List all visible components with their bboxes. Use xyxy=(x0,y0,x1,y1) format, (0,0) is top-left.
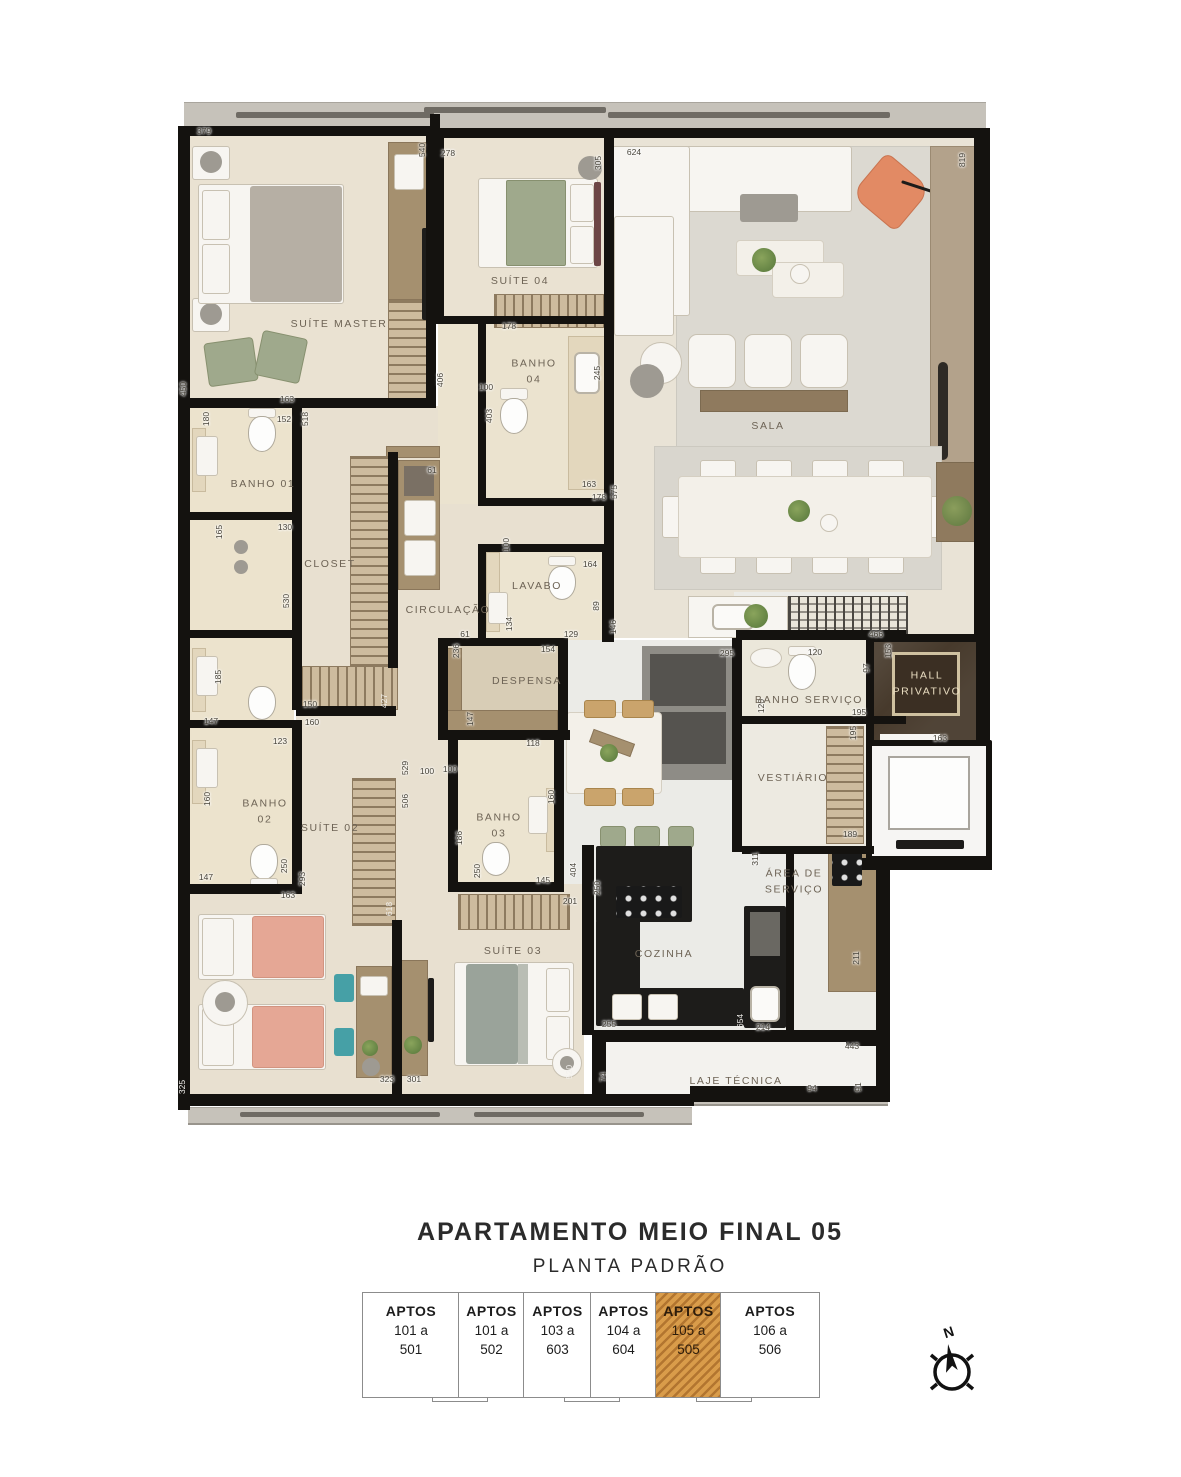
room-floor xyxy=(396,640,444,732)
title-block: APARTAMENTO MEIO FINAL 05 PLANTA PADRÃO xyxy=(180,1218,1080,1278)
furniture-w xyxy=(750,648,782,668)
dimension-label: 160 xyxy=(202,792,212,806)
room-label: BANHO 03 xyxy=(476,810,521,843)
keyplan-unit: APTOS101 a502 xyxy=(458,1292,525,1398)
dimension-label: 529 xyxy=(400,761,410,775)
furniture-gray2 xyxy=(518,964,528,1064)
dimension-label: 214 xyxy=(756,1022,770,1032)
dimension-label: 245 xyxy=(592,366,602,380)
furniture-wc xyxy=(500,398,528,434)
dimension-label: 147 xyxy=(465,712,475,726)
dimension-label: 520 xyxy=(564,1065,574,1079)
page-subtitle: PLANTA PADRÃO xyxy=(180,1256,1080,1278)
dimension-label: 575 xyxy=(609,485,619,499)
furniture-green2 xyxy=(466,964,518,1064)
dimension-label: 163 xyxy=(582,479,596,489)
keyplan-core-tab xyxy=(708,1338,740,1400)
furniture-w xyxy=(360,976,388,996)
furniture-teal xyxy=(334,1028,354,1056)
dimension-label: 160 xyxy=(305,717,319,727)
floor-plan-page: 3795402783056248194501631521805184061004… xyxy=(0,0,1181,1477)
dimension-label: 154 xyxy=(541,644,555,654)
furniture-cook xyxy=(616,886,682,918)
dimension-label: 152 xyxy=(277,414,291,424)
dimension-label: 323 xyxy=(380,1074,394,1084)
furniture-w xyxy=(820,514,838,532)
dimension-label: 819 xyxy=(957,153,967,167)
dimension-label: 325 xyxy=(177,1080,187,1094)
furniture-gray2 xyxy=(362,1058,380,1076)
furniture-gray2 xyxy=(630,364,664,398)
dimension-label: 145 xyxy=(536,875,550,885)
dimension-label: 163 xyxy=(280,394,294,404)
dimension-label: 147 xyxy=(199,872,213,882)
furniture-gray2 xyxy=(234,560,248,574)
keyplan-unit-label: 106 a xyxy=(753,1323,787,1338)
keyplan-unit-highlighted: APTOS105 a505 xyxy=(655,1292,722,1398)
keyplan-unit: APTOS106 a506 xyxy=(720,1292,820,1398)
room-label: SUÍTE MASTER xyxy=(291,316,388,332)
keyplan-unit-label: 506 xyxy=(759,1342,782,1357)
furniture-w xyxy=(648,994,678,1020)
furniture-gray2 xyxy=(740,194,798,222)
room-label: LAJE TÉCNICA xyxy=(689,1073,782,1089)
furniture-green xyxy=(203,337,259,388)
furniture-wc xyxy=(250,844,278,880)
wall xyxy=(974,128,990,640)
wall xyxy=(184,720,296,728)
furniture-teal xyxy=(334,974,354,1002)
furniture-gray2 xyxy=(215,992,235,1012)
dimension-label: 618 xyxy=(384,902,394,916)
wall xyxy=(292,720,302,894)
dimension-label: 178 xyxy=(502,321,516,331)
dimension-label: 654 xyxy=(735,1014,745,1028)
dimension-label: 163 xyxy=(281,890,295,900)
dimension-label: 506 xyxy=(400,794,410,808)
dimension-label: 427 xyxy=(379,694,389,708)
dimension-label: 120 xyxy=(808,647,822,657)
keyplan-unit-label: 502 xyxy=(480,1342,503,1357)
furniture-w xyxy=(394,154,424,190)
furniture-gray2 xyxy=(750,912,780,956)
dimension-label: 250 xyxy=(472,864,482,878)
dimension-label: 134 xyxy=(504,617,514,631)
dimension-label: 250 xyxy=(592,881,602,895)
dimension-label: 185 xyxy=(213,670,223,684)
wall xyxy=(178,126,190,1110)
furniture-green xyxy=(668,826,694,848)
furniture-w xyxy=(744,334,792,388)
furniture-blk xyxy=(428,978,434,1042)
north-compass-icon: N xyxy=(920,1322,984,1406)
furniture-rail xyxy=(608,112,890,118)
wall xyxy=(434,316,614,324)
dimension-label: 195 xyxy=(852,707,866,717)
dimension-label: 147 xyxy=(204,716,218,726)
keyplan-unit-label: APTOS xyxy=(745,1303,795,1319)
wall xyxy=(430,128,988,138)
furniture-wc xyxy=(248,416,276,452)
wall xyxy=(184,512,296,520)
furniture-gray2 xyxy=(200,151,222,173)
furniture-cook xyxy=(832,850,862,886)
dimension-label: 195 xyxy=(848,726,858,740)
keyplan-unit-label: 505 xyxy=(677,1342,700,1357)
dimension-label: 150 xyxy=(303,699,317,709)
wall xyxy=(866,634,874,746)
furniture-green xyxy=(600,826,626,848)
keyplan-unit-label: 103 a xyxy=(541,1323,575,1338)
furniture-rail xyxy=(424,107,606,113)
wall xyxy=(434,132,444,324)
furniture-plant xyxy=(600,744,618,762)
keyplan-unit-label: APTOS xyxy=(663,1303,713,1319)
furniture-w xyxy=(202,190,230,240)
wall xyxy=(478,544,612,552)
furniture-gray3 xyxy=(888,756,970,830)
keyplan-unit-label: 604 xyxy=(612,1342,635,1357)
furniture-w xyxy=(202,244,230,294)
furniture-rail xyxy=(236,112,434,118)
dimension-label: 189 xyxy=(843,829,857,839)
keyplan-core-tab xyxy=(444,1338,476,1400)
furniture-tanc xyxy=(584,788,616,806)
furniture-hatchv xyxy=(826,726,864,844)
room-label: SALA xyxy=(751,418,784,434)
room-label: ÁREA DE SERVIÇO xyxy=(765,866,823,899)
keyplan-unit-label: 501 xyxy=(400,1342,423,1357)
furniture-tanc xyxy=(622,788,654,806)
keyplan-unit-label: APTOS xyxy=(532,1303,582,1319)
dimension-label: 518 xyxy=(300,412,310,426)
dimension-label: 61 xyxy=(427,465,436,475)
furniture-w xyxy=(790,264,810,284)
room-label: VESTIÁRIO xyxy=(758,770,828,786)
dimension-label: 293 xyxy=(297,872,307,886)
wall xyxy=(876,866,890,1048)
furniture-gray2 xyxy=(250,186,342,302)
furniture-plant xyxy=(744,604,768,628)
furniture-salmon xyxy=(252,916,324,978)
keyplan-unit-label: 101 a xyxy=(394,1323,428,1338)
wall xyxy=(178,126,440,136)
keyplan-unit-label: APTOS xyxy=(386,1303,436,1319)
north-label: N xyxy=(941,1323,956,1341)
furniture-plant xyxy=(362,1040,378,1056)
wall xyxy=(184,884,296,894)
keyplan-core-base xyxy=(696,1382,752,1402)
floor-plan: 3795402783056248194501631521805184061004… xyxy=(0,0,1181,1181)
keyplan-unit: APTOS101 a501 xyxy=(362,1292,460,1398)
furniture-w xyxy=(548,556,576,566)
dimension-label: 160 xyxy=(546,790,556,804)
furniture-salmon xyxy=(252,1006,324,1068)
dimension-label: 100 xyxy=(420,766,434,776)
dimension-label: 61 xyxy=(460,629,469,639)
dimension-label: 163 xyxy=(933,733,947,743)
dimension-label: 165 xyxy=(214,525,224,539)
dimension-label: 118 xyxy=(526,738,540,748)
dimension-label: 250 xyxy=(279,859,289,873)
keyplan-core-tab xyxy=(576,1338,608,1400)
dimension-label: 404 xyxy=(568,863,578,877)
keyplan-unit-label: APTOS xyxy=(466,1303,516,1319)
keyplan-unit: APTOS104 a604 xyxy=(590,1292,657,1398)
wall xyxy=(388,452,398,668)
room-label: CIRCULAÇÃO xyxy=(406,602,491,618)
keyplan-core-base xyxy=(432,1382,488,1402)
dimension-label: 129 xyxy=(564,629,578,639)
dimension-label: 255 xyxy=(602,1019,616,1029)
furniture-blk xyxy=(596,920,640,992)
furniture-w xyxy=(528,796,548,834)
furniture-w xyxy=(612,994,642,1020)
dimension-label: 201 xyxy=(563,896,577,906)
furniture-rail xyxy=(474,1112,644,1117)
furniture-wood xyxy=(400,960,428,1076)
keyplan-unit: APTOS103 a603 xyxy=(523,1292,592,1398)
furniture-w xyxy=(196,436,218,476)
room-floor xyxy=(396,732,454,892)
keyplan-core-base xyxy=(564,1382,620,1402)
keyplan-unit-label: 603 xyxy=(546,1342,569,1357)
furniture-tanc xyxy=(584,700,616,718)
wall xyxy=(184,1094,694,1106)
furniture-green xyxy=(254,330,309,385)
dimension-label: 123 xyxy=(273,736,287,746)
furniture-tanc xyxy=(622,700,654,718)
room-label: DESPENSA xyxy=(492,673,562,689)
furniture-wc xyxy=(482,842,510,876)
furniture-plant xyxy=(788,500,810,522)
furniture-sink xyxy=(750,986,780,1022)
dimension-label: 211 xyxy=(851,951,861,965)
dimension-label: 305 xyxy=(593,156,603,170)
dimension-label: 278 xyxy=(441,148,455,158)
dimension-label: 530 xyxy=(281,594,291,608)
wall xyxy=(392,920,402,1096)
wall xyxy=(448,730,458,892)
dimension-label: 100 xyxy=(443,764,457,774)
page-title: APARTAMENTO MEIO FINAL 05 xyxy=(180,1218,1080,1247)
dimension-label: 130 xyxy=(278,522,292,532)
keyplan-unit-label: 105 a xyxy=(672,1323,706,1338)
furniture-w xyxy=(404,500,436,536)
dimension-label: 180 xyxy=(201,412,211,426)
furniture-green xyxy=(634,826,660,848)
wall xyxy=(184,630,296,638)
wall xyxy=(292,408,302,710)
furniture-w xyxy=(202,918,234,976)
room-label: LAVABO xyxy=(512,578,562,594)
dimension-label: 178 xyxy=(592,492,606,502)
furniture-gray2 xyxy=(650,654,726,706)
room-label: SUÍTE 03 xyxy=(484,943,542,959)
dimension-label: 311 xyxy=(750,852,760,866)
room-label: COZINHA xyxy=(635,946,693,962)
furniture-wood xyxy=(930,146,976,464)
wall xyxy=(554,730,564,892)
keyplan-unit-label: 101 a xyxy=(475,1323,509,1338)
wall xyxy=(742,846,874,854)
wall xyxy=(732,638,742,852)
room-label: HALL PRIVATIVO xyxy=(893,668,962,701)
furniture-plant xyxy=(942,496,972,526)
keyplan-unit-label: 104 a xyxy=(607,1323,641,1338)
dimension-label: 186 xyxy=(454,831,464,845)
dimension-label: 236 xyxy=(451,644,461,658)
wall xyxy=(976,634,990,746)
dimension-label: 91 xyxy=(853,1082,863,1091)
furniture-gray2 xyxy=(200,303,222,325)
room-label: SUÍTE 02 xyxy=(301,820,359,836)
furniture-w xyxy=(800,334,848,388)
room-label: SUÍTE 04 xyxy=(491,273,549,289)
furniture-w xyxy=(570,226,594,264)
room-label: CLOSET xyxy=(304,556,356,572)
wall xyxy=(184,398,436,408)
furniture-w xyxy=(614,216,674,336)
wall xyxy=(742,716,906,724)
furniture-blk xyxy=(896,840,964,849)
dimension-label: 450 xyxy=(178,382,188,396)
dimension-label: 164 xyxy=(583,559,597,569)
dimension-label: 406 xyxy=(435,373,445,387)
furniture-gray2 xyxy=(234,540,248,554)
furniture-w xyxy=(570,184,594,222)
dimension-label: 100 xyxy=(479,382,493,392)
keyplan-unit-label: APTOS xyxy=(598,1303,648,1319)
dimension-label: 295 xyxy=(720,648,734,658)
room-label: BANHO 02 xyxy=(242,796,287,829)
dimension-label: 153 xyxy=(883,644,893,658)
furniture-blk xyxy=(594,182,601,266)
furniture-hatchh xyxy=(458,894,570,930)
furniture-plant xyxy=(404,1036,422,1054)
wall xyxy=(582,845,594,1035)
dimension-label: 301 xyxy=(407,1074,421,1084)
wall xyxy=(478,544,486,642)
furniture-wc xyxy=(248,686,276,720)
furniture-w xyxy=(404,540,436,576)
dimension-label: 443 xyxy=(845,1041,859,1051)
room-label: BANHO 01 xyxy=(231,476,296,492)
dimension-label: 146 xyxy=(608,620,618,634)
furniture-wc xyxy=(788,654,816,690)
wall xyxy=(592,1030,606,1102)
dimension-label: 100 xyxy=(501,538,511,552)
room-label: BANHO SERVIÇO xyxy=(755,692,863,708)
dimension-label: 74 xyxy=(598,1072,608,1081)
wall xyxy=(438,638,448,738)
furniture-green xyxy=(506,180,566,266)
dimension-label: 624 xyxy=(627,147,641,157)
furniture-plant xyxy=(752,248,776,272)
dimension-label: 540 xyxy=(417,143,427,157)
dimension-label: 89 xyxy=(591,601,601,610)
dimension-label: 403 xyxy=(484,409,494,423)
furniture-w xyxy=(546,968,570,1012)
furniture-rail xyxy=(240,1112,440,1117)
dimension-label: 94 xyxy=(807,1083,816,1093)
furniture-wood2 xyxy=(700,390,848,412)
furniture-w xyxy=(688,334,736,388)
room-label: BANHO 04 xyxy=(511,356,556,389)
dimension-label: 97 xyxy=(861,663,871,672)
furniture-w xyxy=(196,748,218,788)
dimension-label: 379 xyxy=(197,126,211,136)
dimension-label: 466 xyxy=(869,629,883,639)
